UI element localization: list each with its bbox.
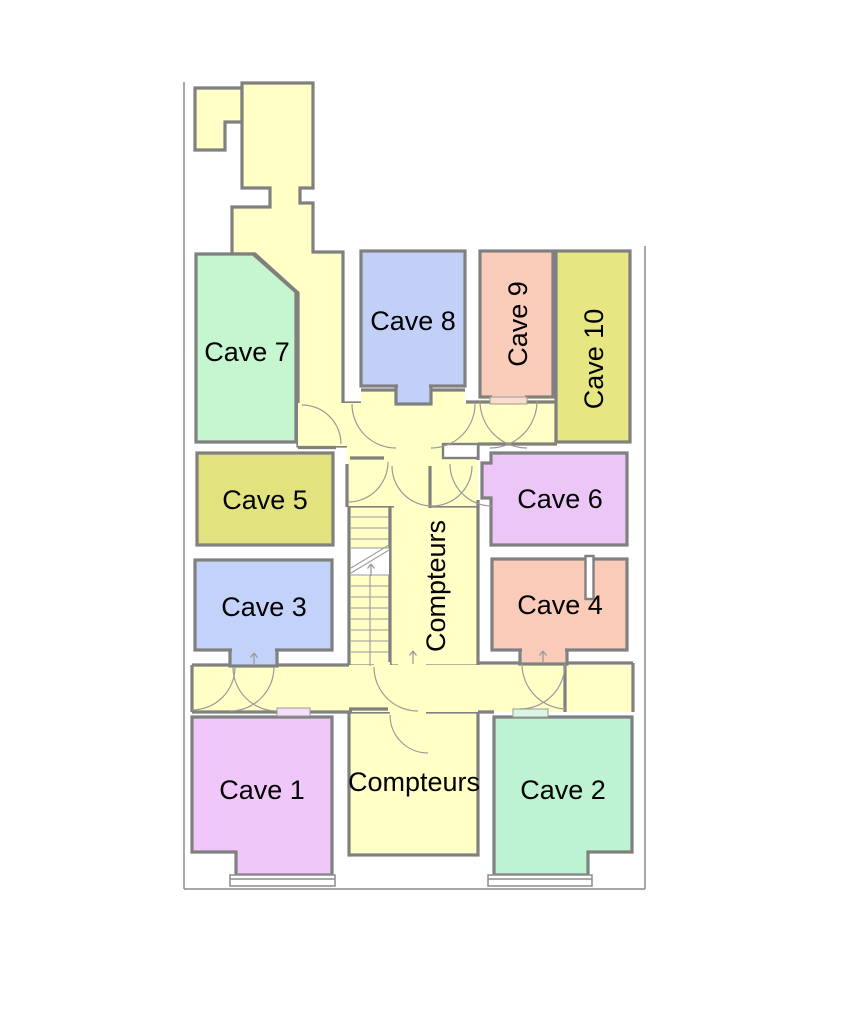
cave-1-door-sill xyxy=(277,708,310,716)
footings xyxy=(230,875,592,886)
floor-plan-page: Cave 7 Cave 8 Cave 9 Cave 10 Cave 5 Cave… xyxy=(0,0,866,1030)
cave-4-label: Cave 4 xyxy=(517,590,603,620)
central-wall-block xyxy=(443,444,478,458)
compteurs-upper-top-door-gap xyxy=(394,502,430,510)
cave-8-tab-opening xyxy=(398,383,429,389)
cave-1-label: Cave 1 xyxy=(219,775,305,805)
compteurs-lower-top-door-gap xyxy=(390,708,426,716)
cave-10-label: Cave 10 xyxy=(579,309,609,410)
compteurs-lower-label: Compteurs xyxy=(348,767,480,797)
cave-8-label: Cave 8 xyxy=(370,306,456,336)
lower-corridor-area xyxy=(192,665,633,712)
cave-2-footing xyxy=(488,875,592,886)
entry-annex-area xyxy=(195,88,242,150)
middle-corridor-area xyxy=(298,403,557,446)
cave-2-label: Cave 2 xyxy=(520,775,606,805)
cave-9-door-sill xyxy=(490,397,527,404)
stairwell-bottom-door-gap xyxy=(374,662,390,670)
cave-5-label: Cave 5 xyxy=(222,485,308,515)
cave-9-label: Cave 9 xyxy=(503,281,533,367)
floor-plan-drawing: Cave 7 Cave 8 Cave 9 Cave 10 Cave 5 Cave… xyxy=(0,0,866,1030)
cave-1-footing xyxy=(230,875,335,886)
cave-7-label: Cave 7 xyxy=(204,337,290,367)
compteurs-upper-bottom-door-gap xyxy=(398,662,426,670)
cave-3-tab-opening xyxy=(232,647,275,653)
cave-6-label: Cave 6 xyxy=(517,484,603,514)
cave-3-label: Cave 3 xyxy=(221,592,307,622)
footing-shapes xyxy=(230,875,592,886)
cave-2-door-sill xyxy=(513,709,548,717)
compteurs-upper-label: Compteurs xyxy=(421,520,451,652)
